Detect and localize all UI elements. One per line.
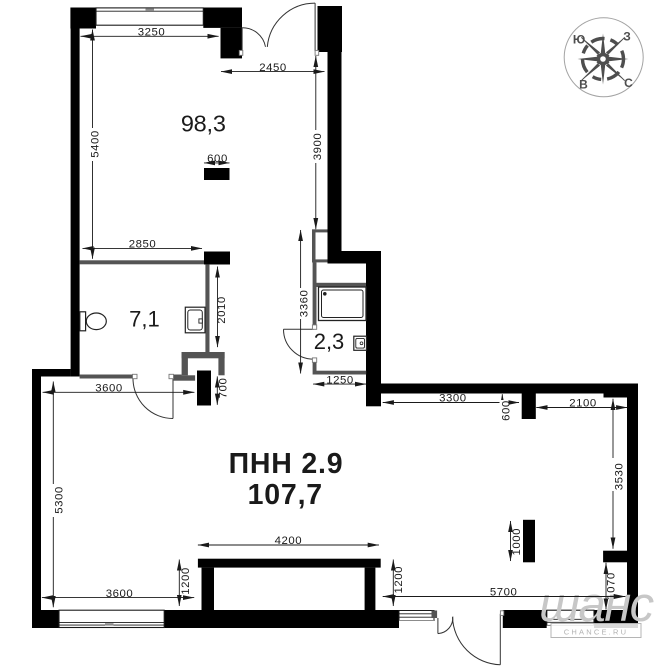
svg-text:С: С — [624, 76, 633, 90]
svg-text:98,3: 98,3 — [181, 110, 226, 136]
svg-text:2010: 2010 — [216, 296, 228, 324]
svg-text:2,3: 2,3 — [314, 329, 345, 354]
svg-text:1200: 1200 — [180, 567, 192, 595]
svg-text:600: 600 — [501, 400, 513, 421]
svg-text:5300: 5300 — [54, 486, 66, 514]
svg-text:3250: 3250 — [138, 27, 166, 39]
svg-text:4200: 4200 — [275, 535, 303, 547]
svg-text:5400: 5400 — [89, 130, 101, 158]
svg-text:3360: 3360 — [299, 290, 311, 318]
svg-text:Ю: Ю — [573, 33, 585, 47]
svg-text:2850: 2850 — [129, 239, 157, 251]
svg-text:107,7: 107,7 — [248, 479, 323, 511]
svg-text:CHANCE.RU: CHANCE.RU — [564, 627, 628, 636]
svg-text:600: 600 — [207, 153, 228, 165]
svg-text:700: 700 — [217, 378, 229, 399]
svg-text:7,1: 7,1 — [129, 306, 160, 331]
svg-text:5700: 5700 — [490, 587, 518, 599]
svg-text:В: В — [579, 78, 588, 92]
svg-text:ПНН 2.9: ПНН 2.9 — [229, 448, 344, 480]
svg-text:2100: 2100 — [569, 398, 597, 410]
svg-text:1250: 1250 — [326, 374, 354, 386]
svg-text:3600: 3600 — [95, 383, 123, 395]
svg-text:З: З — [623, 30, 631, 44]
svg-text:3300: 3300 — [439, 393, 467, 405]
svg-text:1000: 1000 — [511, 528, 523, 556]
svg-text:1070: 1070 — [605, 572, 617, 600]
svg-text:2450: 2450 — [259, 62, 287, 74]
svg-text:3530: 3530 — [613, 463, 625, 491]
svg-text:3900: 3900 — [312, 133, 324, 161]
svg-text:1200: 1200 — [393, 566, 405, 594]
svg-text:3600: 3600 — [106, 588, 134, 600]
